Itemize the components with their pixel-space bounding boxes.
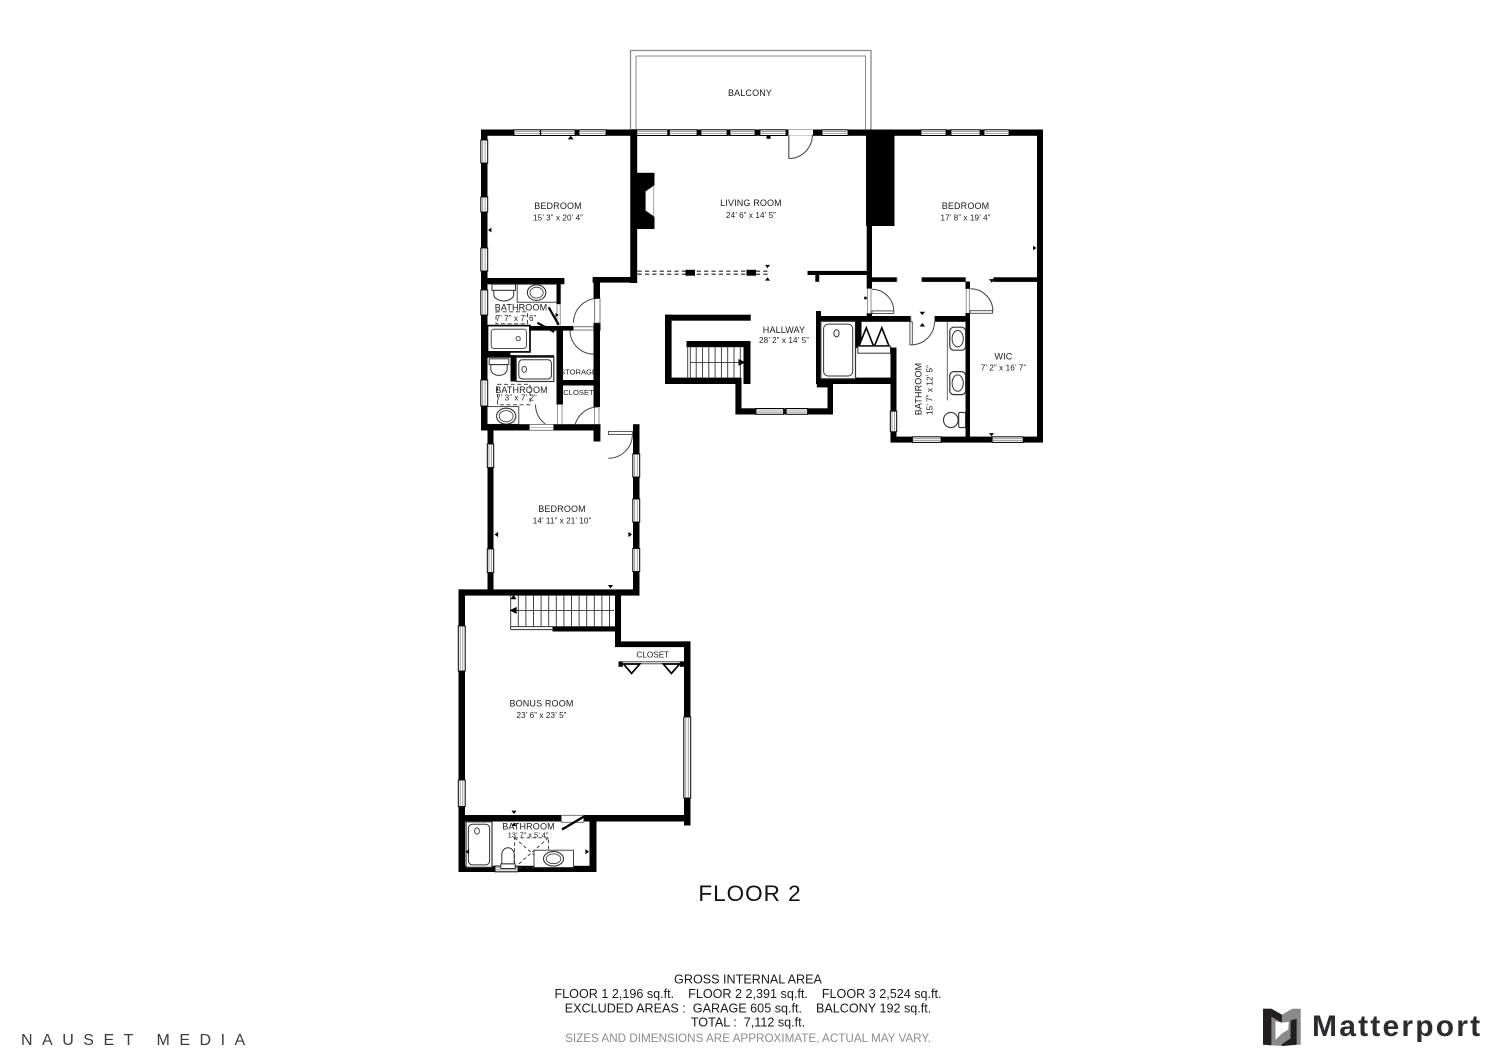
svg-text:CLOSET: CLOSET	[636, 650, 669, 659]
svg-text:STORAGE: STORAGE	[560, 368, 597, 377]
svg-text:28’ 2” x 14’ 5”: 28’ 2” x 14’ 5”	[759, 336, 809, 345]
svg-text:SIZES AND DIMENSIONS ARE APPRO: SIZES AND DIMENSIONS ARE APPROXIMATE, AC…	[565, 1032, 931, 1045]
svg-text:14’ 11” x 21’ 10”: 14’ 11” x 21’ 10”	[533, 517, 592, 526]
svg-text:BONUS ROOM: BONUS ROOM	[509, 699, 573, 709]
svg-text:BALCONY: BALCONY	[728, 88, 772, 98]
svg-text:NAUSET MEDIA: NAUSET MEDIA	[21, 1032, 255, 1049]
svg-text:BEDROOM: BEDROOM	[538, 504, 586, 514]
svg-text:TOTAL : 7,112 sq.ft.: TOTAL : 7,112 sq.ft.	[691, 1016, 805, 1030]
svg-text:GROSS INTERNAL AREA: GROSS INTERNAL AREA	[674, 973, 822, 987]
svg-text:CLOSET: CLOSET	[563, 388, 594, 397]
svg-text:24’ 6” x 14’ 5”: 24’ 6” x 14’ 5”	[726, 211, 776, 220]
svg-text:WIC: WIC	[995, 352, 1013, 362]
svg-text:17’ 8” x 19’ 4”: 17’ 8” x 19’ 4”	[941, 214, 991, 223]
svg-text:23’ 6” x 23’ 5”: 23’ 6” x 23’ 5”	[517, 711, 567, 720]
svg-text:FLOOR 1 2,196 sq.ft. FLOOR: FLOOR 1 2,196 sq.ft. FLOOR 2 2,391 sq.ft…	[554, 987, 941, 1001]
svg-text:LIVING ROOM: LIVING ROOM	[720, 198, 782, 208]
svg-text:BATHROOM: BATHROOM	[495, 303, 548, 313]
svg-text:15’ 3” x 20’ 4”: 15’ 3” x 20’ 4”	[533, 214, 583, 223]
svg-text:BEDROOM: BEDROOM	[942, 201, 990, 211]
svg-text:7’ 3” x 7’ 2”: 7’ 3” x 7’ 2”	[496, 394, 537, 403]
svg-text:7’ 7” x 7’ 6”: 7’ 7” x 7’ 6”	[496, 314, 537, 323]
svg-text:HALLWAY: HALLWAY	[763, 325, 805, 335]
svg-text:15’ 7” x 12’ 5”: 15’ 7” x 12’ 5”	[926, 365, 935, 415]
svg-text:EXCLUDED AREAS : GARAGE 605 s: EXCLUDED AREAS : GARAGE 605 sq.ft. BALCO…	[565, 1002, 932, 1016]
svg-text:7’ 2” x 16’ 7”: 7’ 2” x 16’ 7”	[981, 364, 1027, 373]
svg-text:BATHROOM: BATHROOM	[914, 363, 924, 416]
svg-text:Matterport: Matterport	[1312, 1010, 1482, 1043]
svg-text:FLOOR 2: FLOOR 2	[698, 881, 801, 906]
svg-text:BEDROOM: BEDROOM	[534, 201, 582, 211]
